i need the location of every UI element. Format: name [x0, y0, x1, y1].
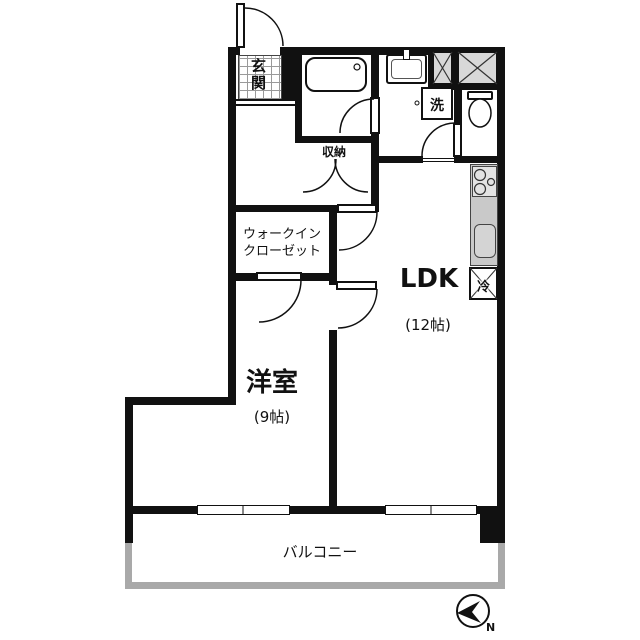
wall-bath-left: [295, 47, 302, 143]
balcony-label: バルコニー: [265, 541, 375, 562]
genkan-step: [236, 99, 295, 106]
wall-bath-bottom: [295, 136, 371, 143]
entrance-door-leaf: [236, 3, 245, 48]
shaft-box-large-icon: [458, 52, 497, 84]
toilet-tank-icon: [467, 91, 493, 100]
wall-step: [125, 397, 236, 405]
ldk-door-arc-icon: [339, 212, 377, 250]
bathtub-icon: [305, 57, 367, 92]
wic-label-line1: ウォークイン: [234, 226, 330, 243]
floorplan-canvas: 玄関 収納 ウォークイン クローゼット LDK (12帖) 洋室 (9帖) バル…: [0, 0, 640, 640]
compass-icon: [457, 595, 489, 627]
wall-mid-vertical-lower: [329, 330, 337, 513]
bathroom-door-leaf: [370, 97, 380, 134]
washroom-door-arc-icon: [422, 123, 455, 156]
storage-door-arc-right-icon: [335, 159, 368, 192]
wic-label-line2: クローゼット: [234, 243, 330, 260]
stove-icon: [472, 166, 497, 197]
wic-door-leaf: [256, 272, 302, 281]
washbasin-bowl: [391, 59, 422, 79]
western-room-label: 洋室: [238, 362, 306, 399]
storage-label: 収納: [300, 143, 368, 160]
laundry-label: 洗: [421, 95, 453, 115]
shaft-box-small-icon: [433, 52, 452, 84]
toilet-bowl-icon: [469, 99, 491, 127]
window-ldk-icon: [385, 505, 477, 515]
wall-washroom-bottom: [371, 156, 423, 163]
wall-left-lower: [125, 397, 133, 514]
compass-north-label: N: [486, 621, 495, 634]
laundry-faucet-dot-icon: [415, 101, 419, 105]
wic-door-arc-icon: [259, 280, 301, 322]
bathroom-door-arc-icon: [340, 99, 374, 133]
wall-mid-vertical-upper: [329, 205, 337, 285]
wall-wic-bottom-left: [228, 273, 256, 281]
ldk-door-leaf: [337, 204, 377, 213]
wall-right: [497, 47, 505, 514]
genkan-label: 玄関: [248, 58, 269, 92]
wic-label: ウォークイン クローゼット: [234, 226, 330, 260]
storage-door-arc-left-icon: [303, 159, 336, 192]
window-western-room-icon: [197, 505, 290, 515]
washroom-door-leaf: [453, 123, 462, 157]
ldk-label: LDK: [398, 264, 460, 294]
wall-bath-washroom-upper: [371, 47, 379, 97]
western-room-door-leaf: [336, 281, 377, 290]
western-room-door-arc-icon: [338, 289, 377, 328]
western-room-size-label: (9帖): [238, 406, 306, 427]
washbasin-tap: [403, 49, 410, 60]
wall-toilet-bottom: [454, 156, 505, 163]
wall-balcony-corner-block: [480, 513, 505, 543]
wall-balcony-left: [125, 506, 133, 543]
fridge-label: 冷: [469, 276, 498, 295]
sink-icon: [474, 224, 496, 258]
wall-toilet-left: [454, 88, 462, 125]
entrance-door-arc-icon: [245, 8, 283, 46]
wall-bath-washroom-lower: [371, 133, 379, 212]
wall-hall-wic: [228, 205, 337, 212]
ldk-size-label: (12帖): [395, 314, 461, 335]
